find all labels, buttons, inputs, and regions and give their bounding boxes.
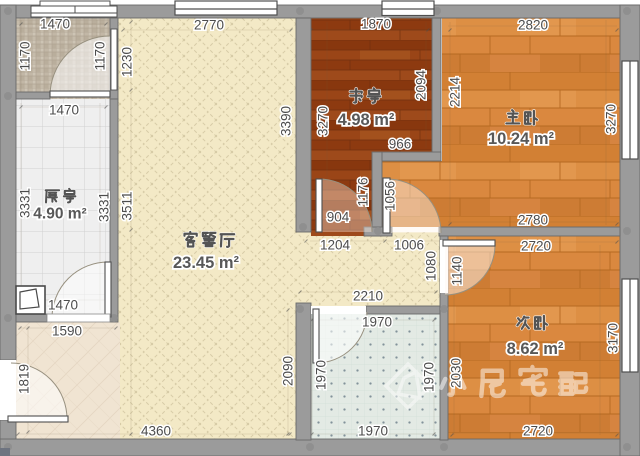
svg-text:1170: 1170 xyxy=(93,41,108,70)
svg-text:2094: 2094 xyxy=(414,69,429,100)
svg-text:2780: 2780 xyxy=(518,213,548,228)
svg-text:3390: 3390 xyxy=(279,106,294,136)
svg-text:1140: 1140 xyxy=(450,256,465,285)
svg-text:3270: 3270 xyxy=(316,106,331,136)
svg-text:2820: 2820 xyxy=(518,18,548,33)
svg-text:2090: 2090 xyxy=(281,356,296,386)
svg-text:1470: 1470 xyxy=(40,17,70,32)
svg-text:4.98 m²: 4.98 m² xyxy=(338,111,395,129)
svg-text:1056: 1056 xyxy=(383,181,398,211)
svg-text:1970: 1970 xyxy=(362,315,392,330)
svg-text:3511: 3511 xyxy=(120,191,135,220)
svg-text:2720: 2720 xyxy=(523,424,553,439)
svg-text:1819: 1819 xyxy=(17,364,32,394)
svg-text:2214: 2214 xyxy=(448,76,463,107)
svg-text:1006: 1006 xyxy=(394,238,424,253)
svg-text:966: 966 xyxy=(389,137,412,152)
svg-text:3331: 3331 xyxy=(97,192,112,222)
svg-text:1870: 1870 xyxy=(361,17,391,32)
svg-text:2030: 2030 xyxy=(449,358,464,388)
svg-text:1470: 1470 xyxy=(49,103,79,118)
svg-text:3331: 3331 xyxy=(18,188,33,218)
svg-text:4360: 4360 xyxy=(141,424,171,439)
svg-text:8.62 m²: 8.62 m² xyxy=(507,340,564,358)
svg-text:4.90 m²: 4.90 m² xyxy=(33,206,86,223)
svg-text:10.24 m²: 10.24 m² xyxy=(488,130,555,148)
svg-text:1204: 1204 xyxy=(320,238,351,253)
svg-text:1590: 1590 xyxy=(52,324,82,339)
svg-text:2720: 2720 xyxy=(521,239,551,254)
svg-text:1970: 1970 xyxy=(422,362,437,392)
svg-text:904: 904 xyxy=(327,210,350,225)
svg-text:23.45 m²: 23.45 m² xyxy=(173,254,240,272)
svg-text:2770: 2770 xyxy=(194,18,224,33)
svg-text:1970: 1970 xyxy=(358,424,388,439)
svg-text:1470: 1470 xyxy=(48,298,78,313)
svg-text:2210: 2210 xyxy=(353,289,383,304)
svg-text:1230: 1230 xyxy=(120,47,135,77)
svg-text:1170: 1170 xyxy=(18,41,33,70)
svg-text:1970: 1970 xyxy=(314,360,329,390)
svg-text:3270: 3270 xyxy=(604,104,619,134)
svg-text:3170: 3170 xyxy=(606,323,621,353)
svg-text:1176: 1176 xyxy=(356,177,371,206)
svg-text:1080: 1080 xyxy=(424,251,439,281)
